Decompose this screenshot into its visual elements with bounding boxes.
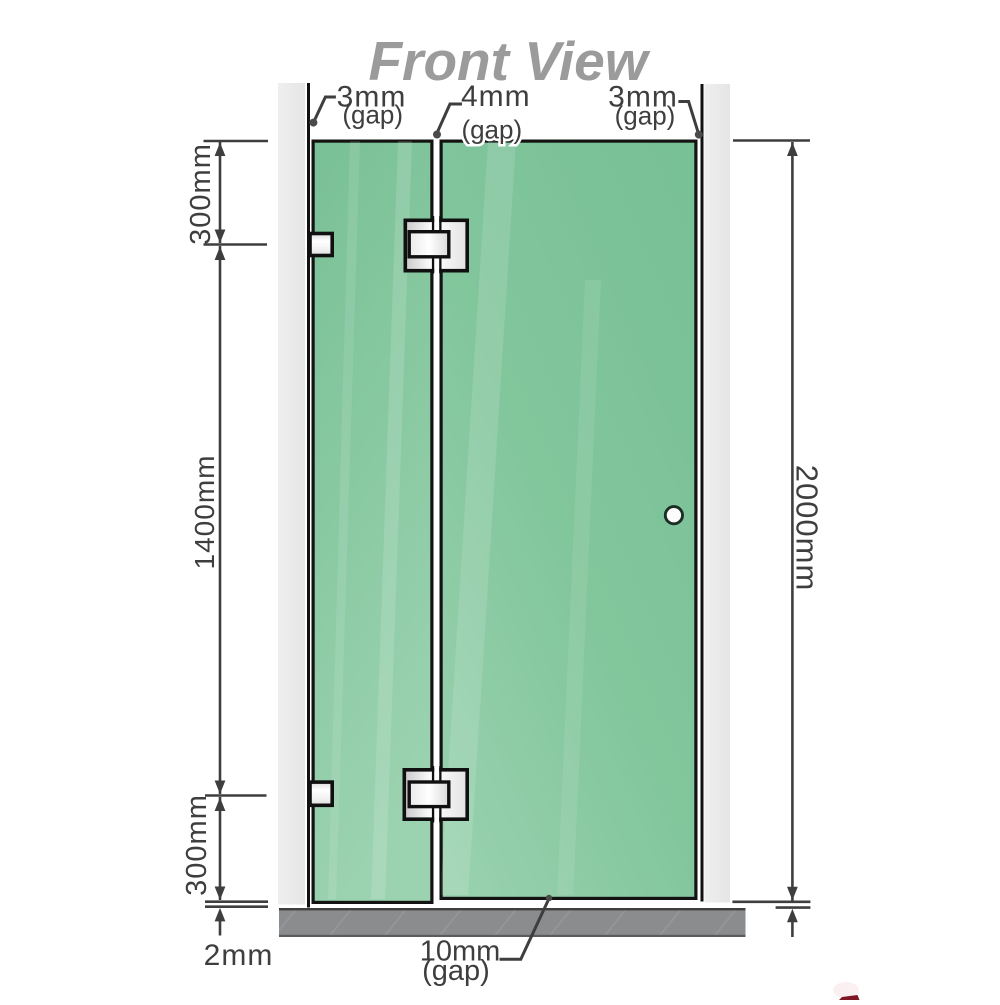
svg-text:(gap): (gap): [615, 101, 676, 131]
svg-text:1400mm: 1400mm: [189, 455, 220, 570]
svg-text:2mm: 2mm: [204, 939, 274, 972]
svg-text:(gap): (gap): [422, 955, 490, 987]
svg-text:(gap): (gap): [342, 100, 403, 130]
svg-text:4mm: 4mm: [461, 80, 531, 113]
svg-text:2000mm: 2000mm: [790, 465, 825, 592]
svg-text:300mm: 300mm: [181, 794, 213, 896]
svg-text:300mm: 300mm: [185, 143, 217, 245]
svg-text:(gap): (gap): [461, 115, 522, 145]
